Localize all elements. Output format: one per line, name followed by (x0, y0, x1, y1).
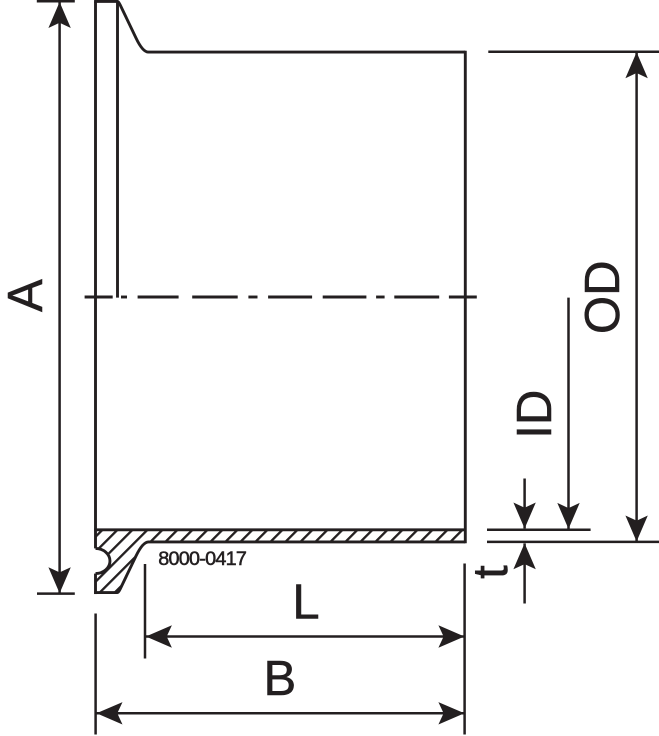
svg-text:A: A (0, 279, 53, 312)
svg-text:OD: OD (576, 261, 630, 335)
svg-text:t: t (464, 565, 518, 579)
svg-text:8000-0417: 8000-0417 (158, 548, 246, 570)
svg-text:B: B (263, 652, 296, 706)
svg-text:ID: ID (508, 390, 562, 439)
svg-text:L: L (292, 576, 319, 630)
